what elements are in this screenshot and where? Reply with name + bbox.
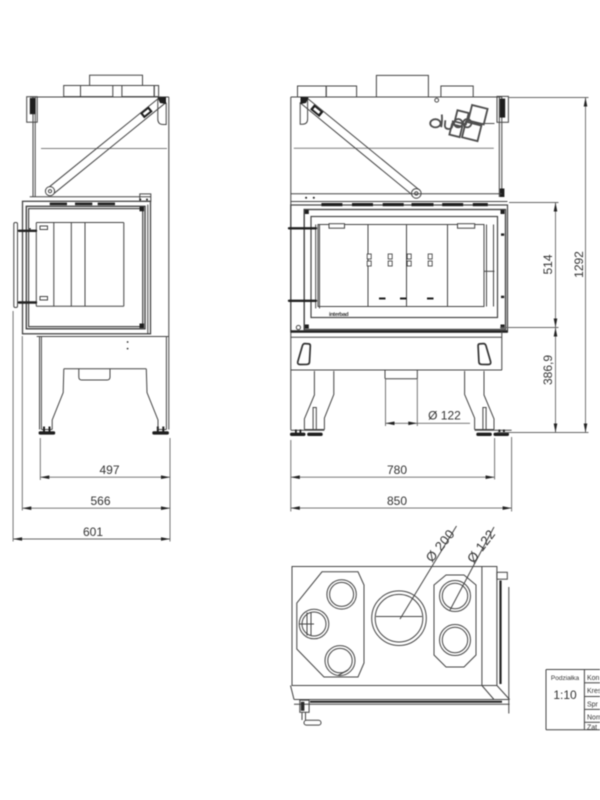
svg-text:780: 780 [387, 463, 407, 477]
svg-text:1292: 1292 [572, 251, 586, 278]
svg-text:Ø 122: Ø 122 [428, 409, 461, 423]
svg-text:Kres: Kres [587, 688, 600, 695]
svg-text:Podziałka: Podziałka [551, 675, 580, 682]
svg-text:850: 850 [387, 494, 407, 508]
svg-text:Spr: Spr [587, 702, 599, 709]
svg-text:514: 514 [541, 254, 555, 274]
svg-text:Norr: Norr [587, 715, 600, 722]
svg-text:Kon: Kon [587, 675, 600, 682]
svg-text:601: 601 [83, 525, 103, 539]
svg-text:566: 566 [90, 494, 110, 508]
svg-text:interbad: interbad [329, 312, 348, 318]
svg-text:497: 497 [99, 463, 119, 477]
svg-text:1:10: 1:10 [553, 688, 577, 702]
svg-text:386,9: 386,9 [541, 355, 555, 385]
svg-text:Zat: Zat [587, 725, 597, 732]
